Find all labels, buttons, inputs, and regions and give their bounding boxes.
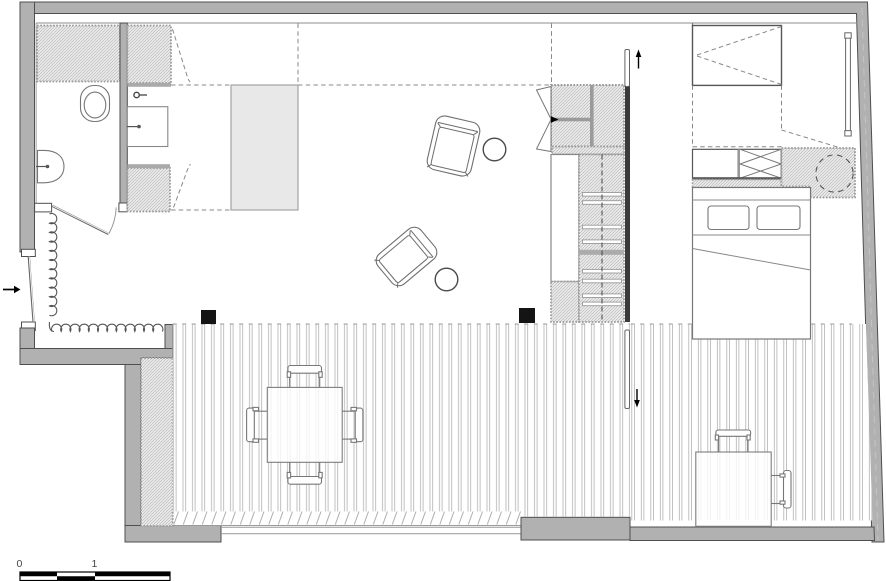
svg-text:0: 0 xyxy=(17,558,23,570)
svg-text:1: 1 xyxy=(92,558,98,570)
